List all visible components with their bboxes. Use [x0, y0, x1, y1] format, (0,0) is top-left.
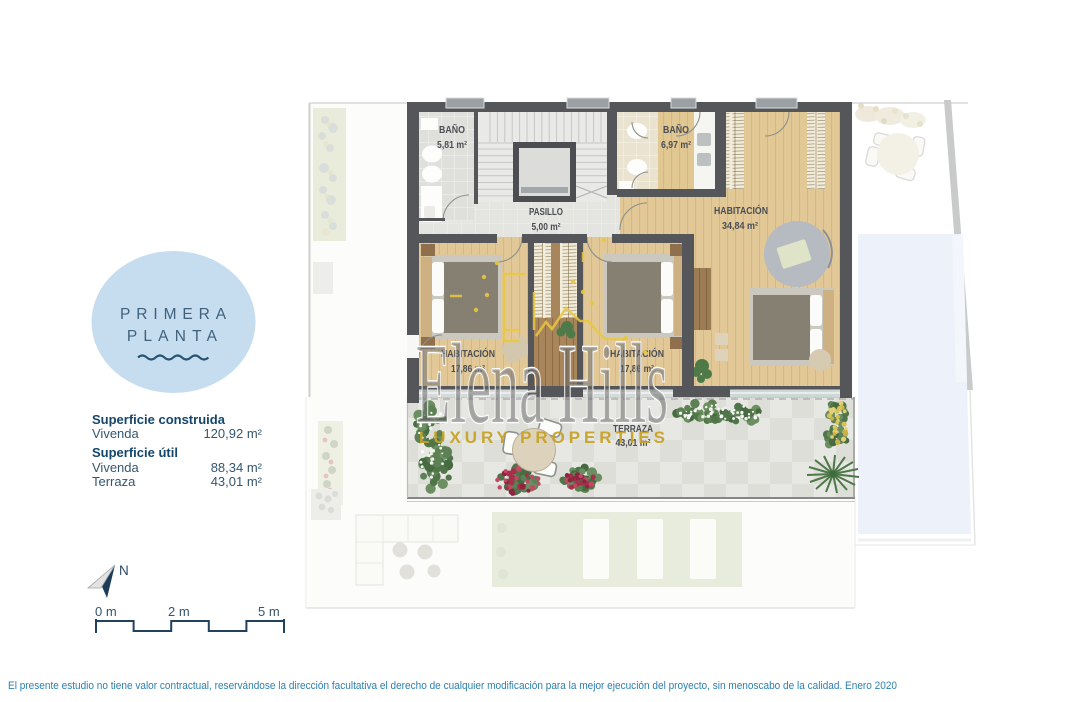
svg-text:PLANTA: PLANTA [127, 328, 223, 345]
svg-text:Vivenda: Vivenda [92, 426, 140, 441]
svg-text:PASILLO: PASILLO [529, 207, 563, 218]
svg-text:Superficie útil: Superficie útil [92, 445, 178, 460]
svg-text:5 m: 5 m [258, 604, 280, 619]
svg-text:2 m: 2 m [168, 604, 190, 619]
svg-text:0 m: 0 m [95, 604, 117, 619]
svg-text:6,97 m²: 6,97 m² [661, 140, 692, 151]
svg-text:5,00 m²: 5,00 m² [532, 222, 562, 233]
svg-text:43,01 m²: 43,01 m² [211, 474, 263, 489]
svg-text:PRIMERA: PRIMERA [120, 306, 232, 323]
svg-text:Superficie construida: Superficie construida [92, 412, 226, 427]
svg-text:Vivenda: Vivenda [92, 460, 140, 475]
svg-text:88,34 m²: 88,34 m² [211, 460, 263, 475]
svg-text:5,81 m²: 5,81 m² [437, 140, 468, 151]
svg-text:BAÑO: BAÑO [663, 125, 689, 136]
svg-text:Terraza: Terraza [92, 474, 136, 489]
svg-text:HABITACIÓN: HABITACIÓN [714, 205, 768, 217]
svg-text:34,84 m²: 34,84 m² [722, 221, 759, 232]
svg-text:120,92 m²: 120,92 m² [203, 426, 262, 441]
svg-text:BAÑO: BAÑO [439, 125, 465, 136]
svg-text:N: N [119, 563, 129, 578]
svg-text:El presente estudio no tiene v: El presente estudio no tiene valor contr… [8, 680, 897, 692]
